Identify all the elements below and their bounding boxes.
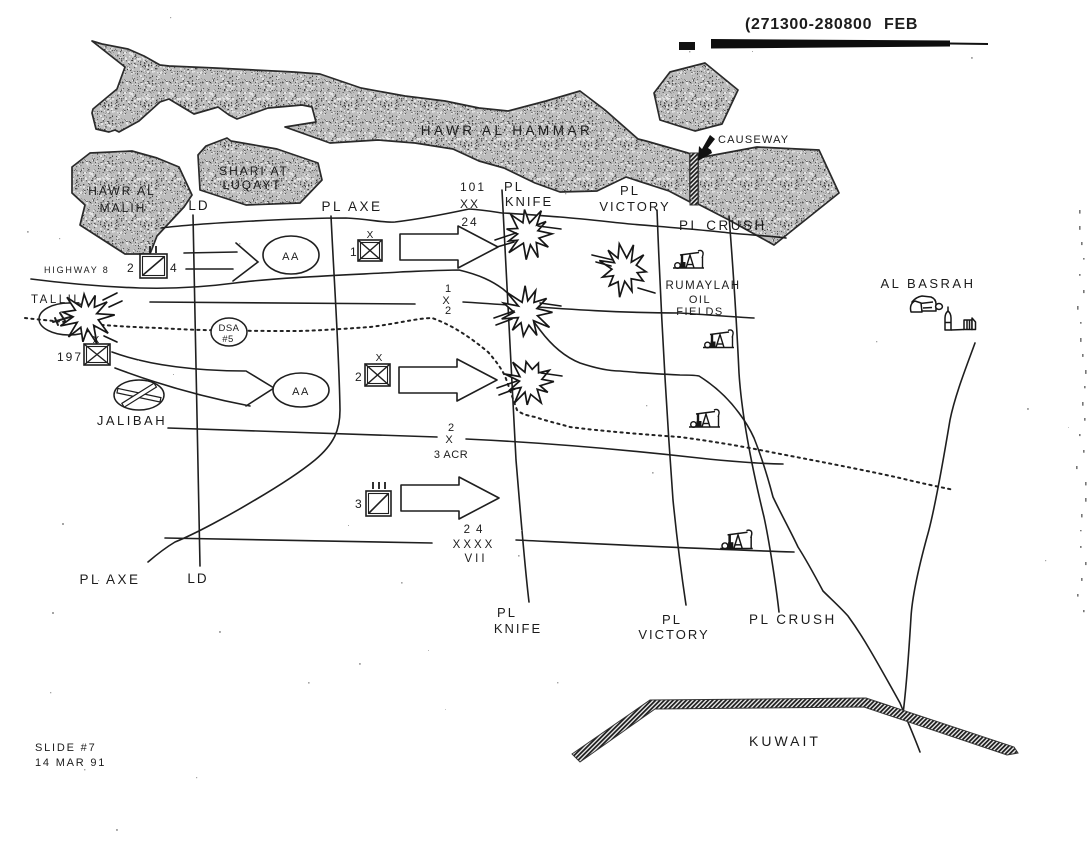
svg-text:PL: PL [662, 612, 682, 627]
svg-text:RUMAYLAH: RUMAYLAH [665, 280, 740, 292]
svg-text:TALLIL: TALLIL [31, 294, 82, 306]
svg-text:2: 2 [355, 370, 362, 384]
svg-text:PL AXE: PL AXE [79, 572, 140, 587]
svg-text:PL: PL [497, 605, 517, 620]
svg-text:3 ACR: 3 ACR [434, 449, 468, 461]
svg-text:X: X [93, 335, 100, 346]
svg-text:#5: #5 [222, 334, 234, 345]
svg-text:PL: PL [504, 179, 524, 194]
svg-text:LD: LD [188, 198, 209, 213]
svg-text:HAWR AL: HAWR AL [88, 184, 156, 198]
svg-text:PL AXE: PL AXE [321, 199, 382, 214]
svg-text:JALIBAH: JALIBAH [97, 413, 167, 428]
svg-text:LUQAYT: LUQAYT [222, 178, 281, 192]
svg-text:X: X [376, 353, 383, 364]
svg-text:1: 1 [445, 283, 451, 295]
svg-text:PL CRUSH: PL CRUSH [749, 612, 837, 627]
svg-text:LD: LD [187, 571, 208, 586]
svg-text:FIELDS: FIELDS [676, 306, 724, 318]
svg-text:24: 24 [461, 215, 478, 229]
svg-text:PL CRUSH: PL CRUSH [679, 218, 767, 233]
svg-text:FEB: FEB [884, 16, 918, 33]
svg-text:SHARI AT: SHARI AT [219, 164, 289, 178]
svg-text:2: 2 [445, 305, 451, 317]
svg-text:VICTORY: VICTORY [638, 627, 709, 642]
svg-text:CAUSEWAY: CAUSEWAY [718, 134, 789, 146]
svg-text:(271300-280800: (271300-280800 [745, 16, 872, 33]
svg-text:MALIH: MALIH [100, 201, 147, 215]
svg-text:4: 4 [170, 261, 177, 275]
svg-text:101: 101 [460, 180, 486, 194]
svg-text:VICTORY: VICTORY [599, 199, 670, 214]
svg-text:HAWR AL HAMMAR: HAWR AL HAMMAR [421, 123, 594, 138]
svg-text:1: 1 [350, 245, 357, 259]
svg-text:2: 2 [448, 422, 454, 434]
svg-text:SLIDE #7: SLIDE #7 [35, 742, 96, 754]
svg-text:HIGHWAY 8: HIGHWAY 8 [44, 265, 110, 275]
svg-text:AA: AA [292, 386, 310, 398]
svg-text:XX: XX [460, 197, 480, 211]
svg-text:XXXX: XXXX [453, 539, 496, 551]
svg-text:14 MAR 91: 14 MAR 91 [35, 757, 106, 769]
svg-text:OIL: OIL [689, 294, 711, 306]
svg-text:X: X [445, 434, 453, 446]
svg-text:197: 197 [57, 350, 83, 364]
svg-text:KNIFE: KNIFE [494, 621, 542, 636]
svg-text:24: 24 [464, 524, 489, 536]
svg-text:DSA: DSA [218, 323, 239, 334]
svg-text:2: 2 [127, 261, 134, 275]
svg-text:PL: PL [620, 183, 640, 198]
svg-text:AA: AA [282, 251, 300, 263]
svg-text:X: X [367, 230, 374, 241]
svg-text:KUWAIT: KUWAIT [749, 733, 821, 749]
svg-text:3: 3 [355, 497, 362, 511]
svg-text:AL BASRAH: AL BASRAH [881, 276, 976, 291]
svg-text:VII: VII [464, 553, 487, 565]
svg-text:KNIFE: KNIFE [505, 194, 553, 209]
